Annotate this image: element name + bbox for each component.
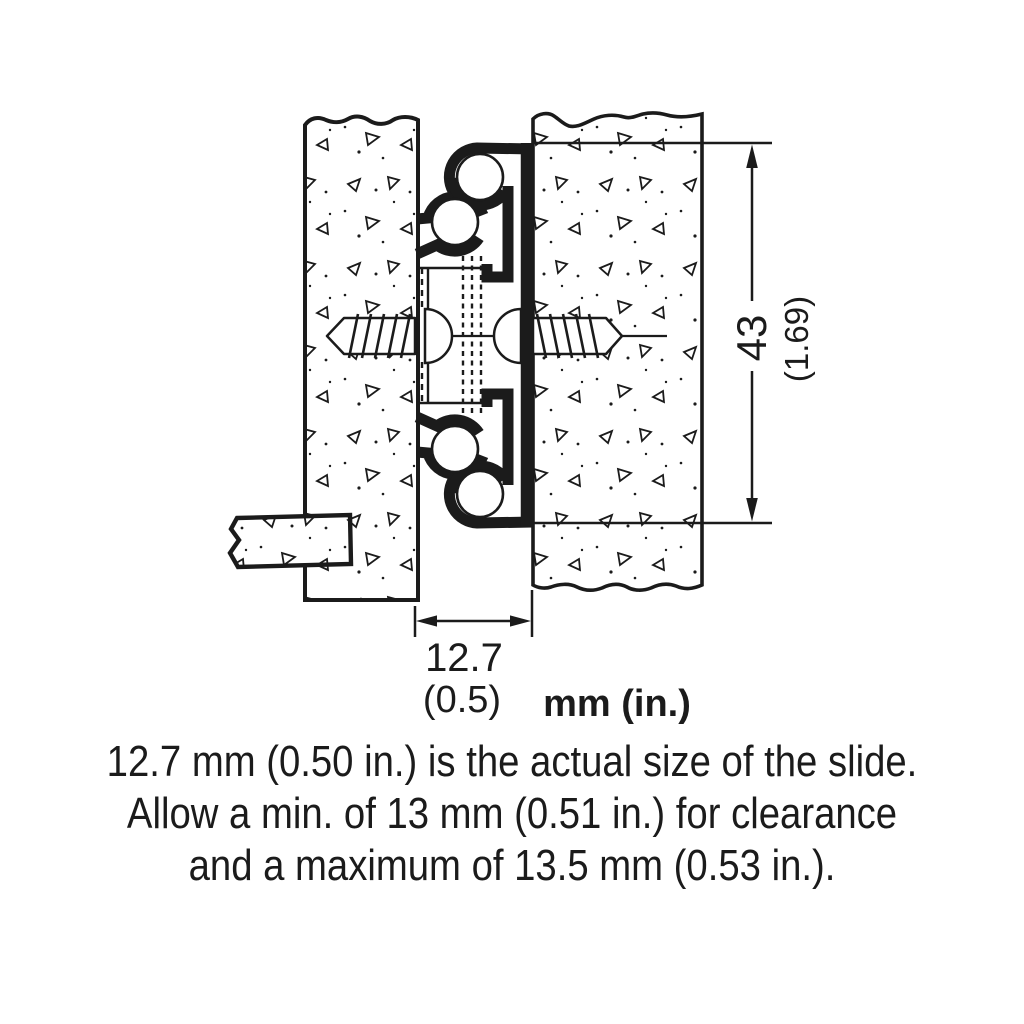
height-dim-in-label: (1.69) — [778, 296, 815, 382]
ball-bearing-top-inner — [432, 199, 478, 245]
caption-line-2: Allow a min. of 13 mm (0.51 in.) for cle… — [67, 788, 958, 840]
width-dim-mm-label: 12.7 — [425, 636, 503, 680]
caption-line-1: 12.7 mm (0.50 in.) is the actual size of… — [67, 736, 958, 788]
height-dim-mm-label: 43 — [728, 315, 775, 362]
arrow-left-icon — [416, 615, 437, 626]
width-dim-in-label: (0.5) — [423, 679, 501, 721]
screw-head-right — [494, 309, 521, 363]
ball-bearing-bottom-outer — [457, 471, 503, 517]
mounting-screw-left — [327, 314, 415, 358]
caption: 12.7 mm (0.50 in.) is the actual size of… — [67, 736, 958, 892]
page: { "diagram": { "title_semantic": "drawer… — [0, 0, 1024, 1024]
screw-head-left — [425, 309, 452, 363]
arrow-down-icon — [746, 498, 758, 522]
arrow-right-icon — [510, 615, 531, 626]
height-dimension: 43 (1.69) — [728, 145, 815, 522]
drawer-bottom-board — [230, 515, 351, 567]
caption-line-3: and a maximum of 13.5 mm (0.53 in.). — [67, 840, 958, 892]
width-dimension: 12.7 (0.5) — [415, 590, 532, 721]
arrow-up-icon — [746, 145, 758, 169]
units-label: mm (in.) — [543, 683, 691, 725]
ball-bearing-top-outer — [457, 154, 503, 200]
ball-bearing-bottom-inner — [432, 426, 478, 472]
